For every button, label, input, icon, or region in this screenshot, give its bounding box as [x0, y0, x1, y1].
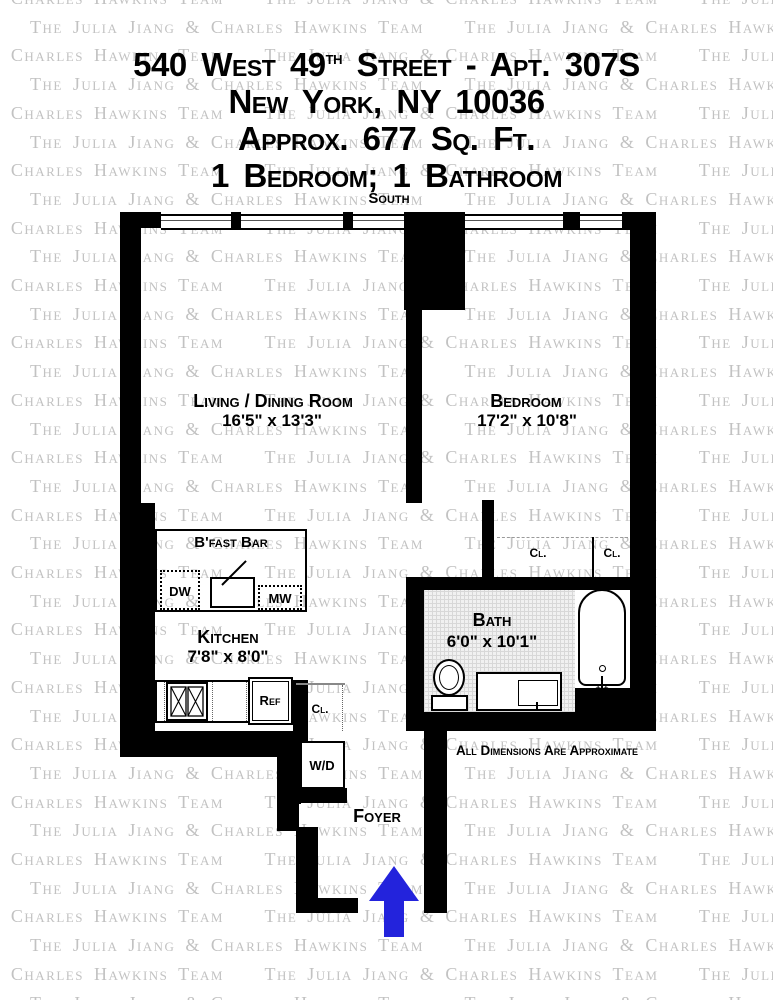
tub-drain — [599, 665, 606, 672]
vanity-sink — [476, 672, 562, 711]
window — [465, 214, 622, 230]
room-dims-kitchen: 7'8" x 8'0" — [188, 648, 269, 665]
toilet-bowl-inner — [439, 665, 459, 690]
watermark-text: The Julia Jiang & Charles Hawkins Team T… — [0, 0, 773, 9]
room-label-foyer: Foyer — [353, 807, 401, 825]
watermark-text: The Julia Jiang & Charles Hawkins Team T… — [0, 275, 773, 296]
watermark-text: The Julia Jiang & Charles Hawkins Team T… — [30, 304, 773, 325]
toilet-tank — [431, 695, 468, 711]
closet-divider — [592, 537, 594, 578]
watermark-text: The Julia Jiang & Charles Hawkins Team T… — [30, 820, 773, 841]
orientation-label: South — [368, 191, 409, 206]
wall-segment — [296, 898, 358, 913]
watermark-text: The Julia Jiang & Charles Hawkins Team T… — [0, 562, 773, 583]
wall-segment — [120, 731, 300, 757]
watermark-text: The Julia Jiang & Charles Hawkins Team T… — [0, 447, 773, 468]
room-label-kitchen: Kitchen — [197, 628, 258, 646]
wall-segment — [563, 212, 580, 228]
watermark-text: The Julia Jiang & Charles Hawkins Team T… — [30, 419, 773, 440]
watermark-text: The Julia Jiang & Charles Hawkins Team T… — [30, 17, 773, 38]
counter-divider — [246, 682, 247, 721]
toilet — [433, 659, 465, 696]
watermark-text: The Julia Jiang & Charles Hawkins Team T… — [30, 361, 773, 382]
watermark-text: The Julia Jiang & Charles Hawkins Team T… — [0, 332, 773, 353]
config-line: 1 Bedroom; 1 Bathroom — [0, 157, 773, 194]
window — [161, 214, 404, 230]
wall-segment — [406, 577, 424, 731]
wall-segment — [343, 212, 353, 228]
watermark-text: The Julia Jiang & Charles Hawkins Team T… — [30, 246, 773, 267]
wall-segment — [482, 500, 494, 588]
vanity-tap — [536, 702, 538, 710]
wall-segment — [630, 212, 656, 731]
watermark-text: The Julia Jiang & Charles Hawkins Team T… — [30, 476, 773, 497]
room-label-bedroom: Bedroom — [490, 392, 562, 410]
entrance-arrow-icon — [360, 860, 430, 940]
watermark-text: The Julia Jiang & Charles Hawkins Team T… — [30, 993, 773, 1000]
watermark-text: The Julia Jiang & Charles Hawkins Team T… — [0, 390, 773, 411]
room-dims-bath: 6'0" x 10'1" — [447, 633, 537, 650]
watermark-text: The Julia Jiang & Charles Hawkins Team T… — [0, 619, 773, 640]
bathtub — [575, 588, 630, 690]
tub-faucet-marks: + + — [595, 684, 608, 693]
counter-divider — [212, 682, 213, 721]
watermark-text: The Julia Jiang & Charles Hawkins Team T… — [0, 677, 773, 698]
wall-segment — [277, 757, 299, 831]
address-suffix: Street - Apt. 307S — [342, 46, 640, 83]
closet-label-1: Cl. — [530, 547, 547, 559]
city-line: New York, NY 10036 — [0, 83, 773, 120]
stove — [166, 682, 208, 721]
breakfast-bar-label: B'fast Bar — [194, 535, 267, 550]
room-dims-bedroom: 17'2" x 10'8" — [477, 412, 577, 429]
vanity-basin — [518, 680, 558, 706]
closet-line — [296, 683, 345, 685]
closet-label-2: Cl. — [604, 547, 621, 559]
wall-segment — [404, 212, 465, 310]
closet-front — [497, 537, 628, 538]
wall-segment — [406, 712, 656, 731]
address-prefix: 540 West 49 — [133, 46, 325, 83]
dimensions-note: All Dimensions Are Approximate — [456, 744, 638, 758]
room-label-living: Living / Dining Room — [193, 392, 353, 410]
watermark-text: The Julia Jiang & Charles Hawkins Team T… — [0, 734, 773, 755]
address-ordinal: th — [326, 48, 342, 68]
wall-segment — [120, 212, 141, 757]
watermark-text: The Julia Jiang & Charles Hawkins Team T… — [30, 763, 773, 784]
wall-segment — [141, 503, 155, 757]
closet-front — [342, 685, 343, 731]
room-dims-living: 16'5" x 13'3" — [222, 412, 322, 429]
listing-header: 540 West 49th Street - Apt. 307S New Yor… — [0, 40, 773, 194]
wall-segment — [575, 688, 656, 714]
wall-segment — [406, 310, 422, 503]
watermark-text: The Julia Jiang & Charles Hawkins Team T… — [0, 505, 773, 526]
address-line: 540 West 49th Street - Apt. 307S — [0, 40, 773, 83]
wall-segment — [231, 212, 241, 228]
washer-dryer-label: W/D — [309, 759, 334, 772]
dishwasher-label: DW — [169, 585, 191, 598]
watermark-text: The Julia Jiang & Charles Hawkins Team T… — [0, 964, 773, 985]
kitchen-sink — [210, 577, 255, 608]
counter-divider — [164, 682, 165, 721]
floor-plan-page: The Julia Jiang & Charles Hawkins Team T… — [0, 0, 773, 1000]
area-line: Approx. 677 Sq. Ft. — [0, 120, 773, 157]
refrigerator-label: Ref — [260, 694, 281, 707]
bathtub-outline — [578, 589, 626, 686]
closet-label-kitchen: Cl. — [312, 703, 329, 715]
wall-segment — [406, 577, 656, 590]
room-label-bath: Bath — [473, 611, 512, 629]
microwave-label: MW — [268, 592, 291, 605]
